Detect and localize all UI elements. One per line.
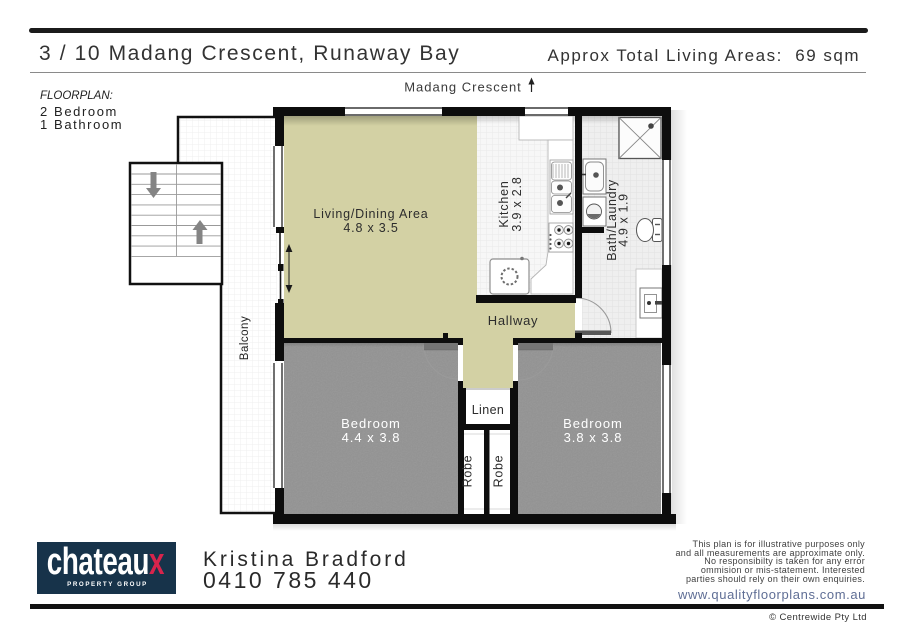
svg-text:Robe: Robe: [461, 455, 475, 488]
svg-text:4.4 x 3.8: 4.4 x 3.8: [342, 430, 401, 445]
svg-text:Kitchen: Kitchen: [497, 180, 511, 227]
svg-text:Balcony: Balcony: [239, 316, 251, 360]
svg-text:Linen: Linen: [472, 403, 505, 417]
svg-text:Madang Crescent: Madang Crescent: [404, 80, 522, 95]
svg-text:3.8 x 3.8: 3.8 x 3.8: [564, 430, 623, 445]
svg-text:3.9 x 2.8: 3.9 x 2.8: [510, 176, 524, 231]
svg-text:Living/Dining Area: Living/Dining Area: [313, 207, 428, 221]
svg-text:Bedroom: Bedroom: [563, 416, 623, 431]
svg-text:Bedroom: Bedroom: [341, 416, 401, 431]
svg-text:4.9 x 1.9: 4.9 x 1.9: [617, 193, 631, 246]
svg-text:Robe: Robe: [492, 455, 506, 488]
svg-text:4.8 x 3.5: 4.8 x 3.5: [343, 221, 398, 235]
svg-text:Hallway: Hallway: [488, 313, 538, 328]
